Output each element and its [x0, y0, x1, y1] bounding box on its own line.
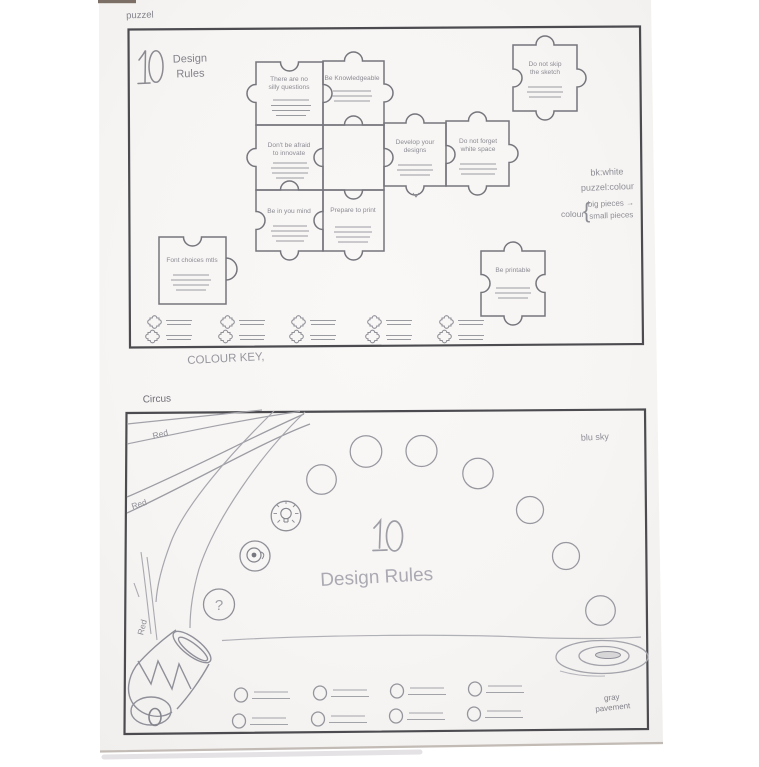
svg-text:white space: white space — [460, 146, 496, 153]
svg-text:colour: colour — [561, 209, 584, 219]
svg-text:puzzel:colour: puzzel:colour — [581, 181, 634, 193]
svg-text:Do not skip: Do not skip — [529, 61, 562, 68]
svg-text:Don't be afraid: Don't be afraid — [268, 142, 311, 149]
svg-text:silly questions: silly questions — [268, 84, 310, 91]
svg-text:gray: gray — [604, 692, 620, 703]
svg-text:Font choices mtls: Font choices mtls — [166, 257, 218, 264]
svg-text:Circus: Circus — [143, 394, 172, 406]
svg-text:small pieces: small pieces — [589, 210, 633, 221]
svg-text:bk:white: bk:white — [590, 166, 623, 177]
svg-text:Prepare to print: Prepare to print — [330, 207, 376, 214]
svg-text:to innovate: to innovate — [273, 150, 306, 157]
svg-text:big pieces →: big pieces → — [588, 198, 635, 209]
svg-text:puzzel: puzzel — [126, 10, 154, 22]
svg-text:There are no: There are no — [270, 76, 308, 83]
svg-text:?: ? — [215, 597, 223, 614]
svg-text:Be Knowledgeable: Be Knowledgeable — [325, 75, 380, 82]
svg-text:Be in you mind: Be in you mind — [267, 208, 311, 215]
svg-text:Be printable: Be printable — [495, 267, 531, 274]
svg-text:Design: Design — [173, 52, 208, 65]
svg-text:blu sky: blu sky — [581, 431, 610, 442]
svg-text:designs: designs — [404, 147, 427, 154]
svg-text:Rules: Rules — [176, 67, 205, 80]
svg-text:Develop your: Develop your — [396, 139, 436, 146]
svg-text:Do not forget: Do not forget — [459, 138, 497, 145]
svg-text:the sketch: the sketch — [530, 69, 560, 76]
